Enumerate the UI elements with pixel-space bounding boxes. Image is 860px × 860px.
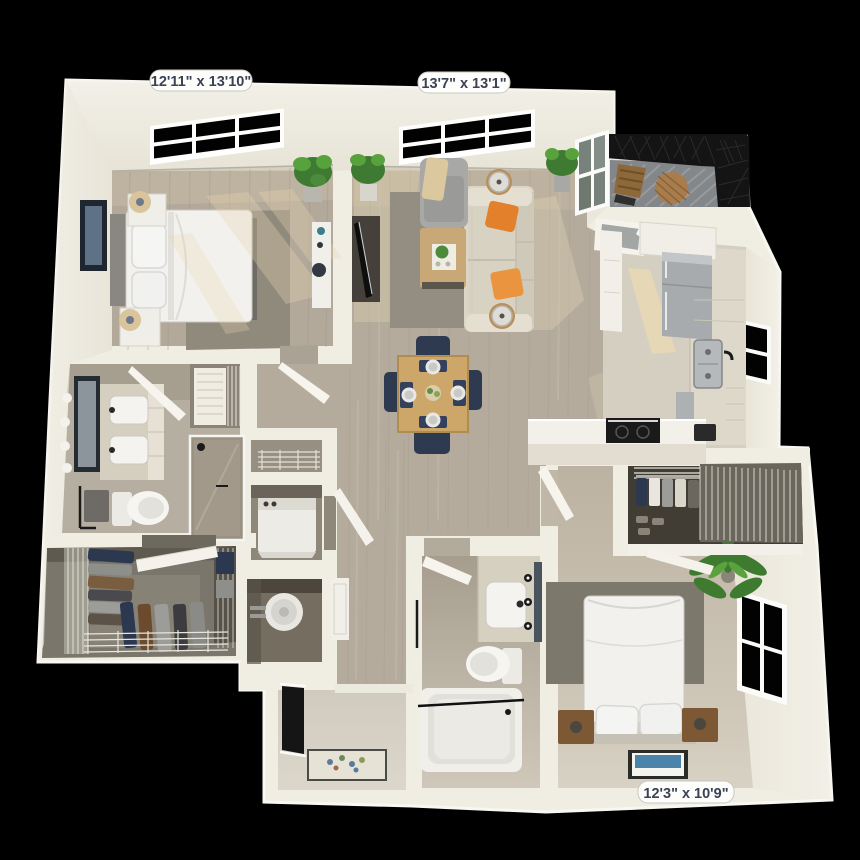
svg-text:12'11" x 13'10": 12'11" x 13'10" (151, 74, 251, 90)
svg-text:12'3" x 10'9": 12'3" x 10'9" (643, 786, 728, 802)
svg-text:13'7" x 13'1": 13'7" x 13'1" (421, 76, 506, 92)
